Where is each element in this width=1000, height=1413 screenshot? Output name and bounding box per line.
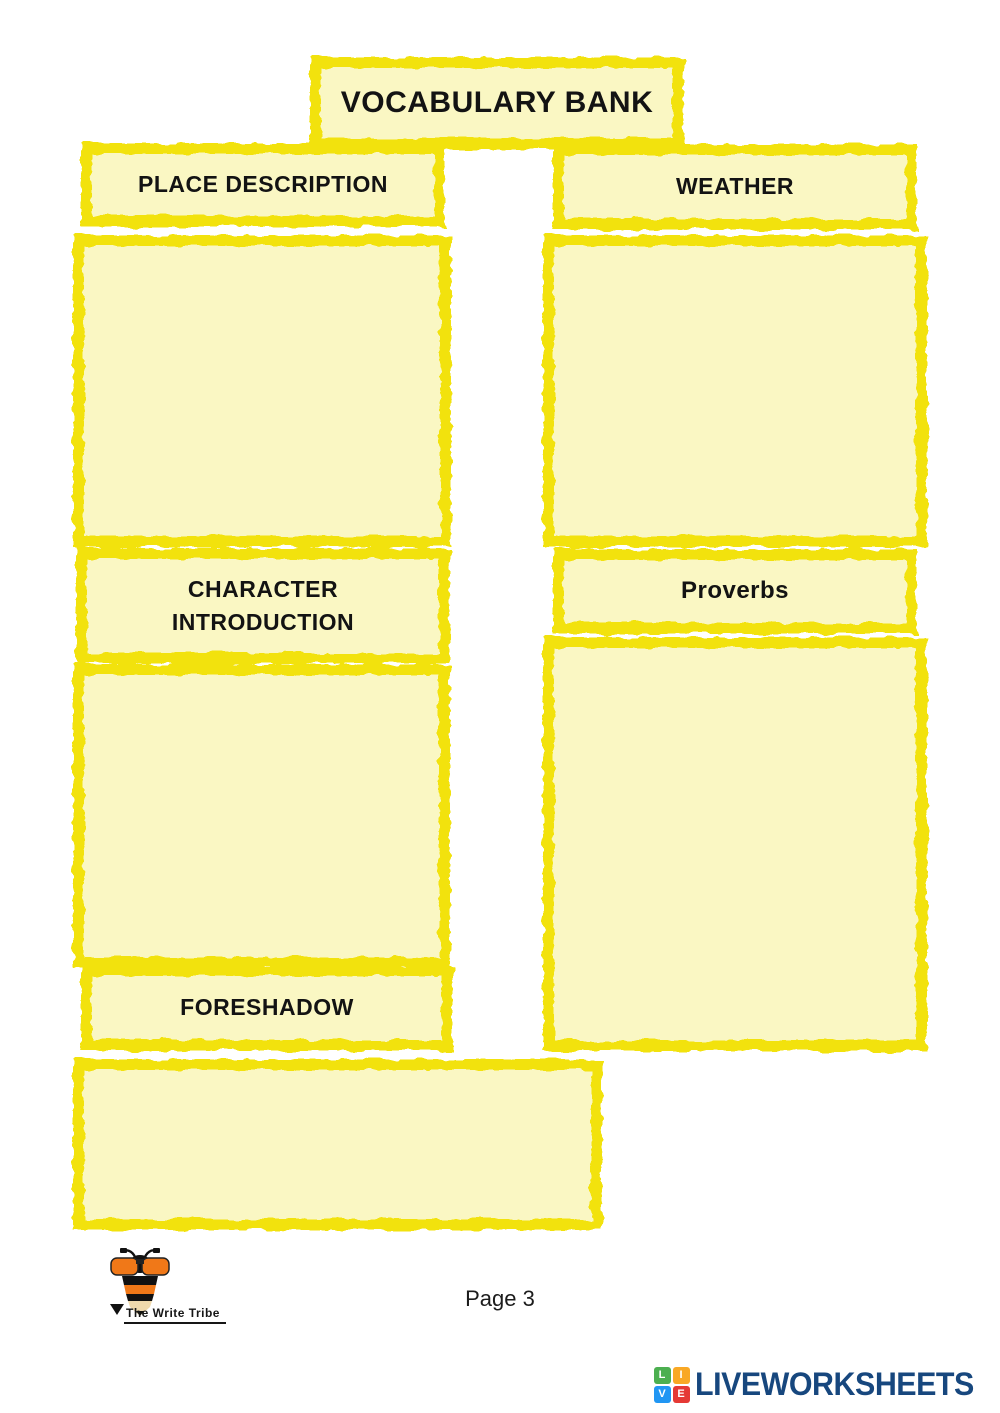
tile-letter-i: I <box>673 1367 690 1384</box>
foreshadow-answer-box[interactable] <box>76 1062 599 1227</box>
place-description-answer-box[interactable] <box>76 238 448 544</box>
tile-letter-l: L <box>654 1367 671 1384</box>
place-description-header-box: PLACE DESCRIPTION <box>84 146 442 224</box>
tile-letter-v: V <box>654 1386 671 1403</box>
foreshadow-header-box: FORESHADOW <box>84 968 450 1048</box>
page-title: VOCABULARY BANK <box>313 60 681 146</box>
character-introduction-answer-box[interactable] <box>76 667 447 965</box>
character-introduction-header-box: CHARACTER INTRODUCTION <box>79 551 447 661</box>
tile-letter-e: E <box>673 1386 690 1403</box>
liveworksheets-tiles-icon: L I V E <box>654 1367 690 1403</box>
place-description-label: PLACE DESCRIPTION <box>84 146 442 224</box>
vocabulary-bank-title-box: VOCABULARY BANK <box>313 60 681 146</box>
weather-label: WEATHER <box>556 147 914 227</box>
proverbs-answer-box[interactable] <box>546 640 924 1048</box>
character-introduction-label: CHARACTER INTRODUCTION <box>79 551 447 661</box>
proverbs-label: Proverbs <box>556 552 914 631</box>
foreshadow-label: FORESHADOW <box>84 968 450 1048</box>
liveworksheets-wordmark: LIVEWORKSHEETS <box>695 1366 974 1403</box>
weather-answer-box[interactable] <box>546 238 924 544</box>
proverbs-header-box: Proverbs <box>556 552 914 631</box>
liveworksheets-logo[interactable]: L I V E LIVEWORKSHEETS <box>654 1366 988 1403</box>
weather-header-box: WEATHER <box>556 147 914 227</box>
page-number: Page 3 <box>0 1286 1000 1312</box>
